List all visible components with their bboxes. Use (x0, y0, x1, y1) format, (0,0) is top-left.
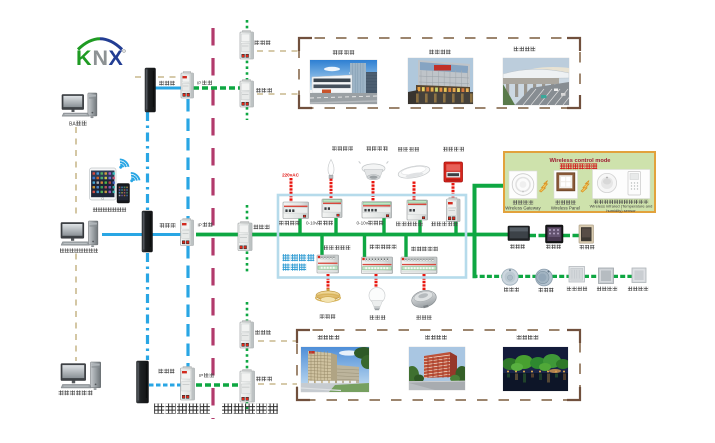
svg-text:Wireless control mode: Wireless control mode (550, 158, 611, 164)
svg-text:humidity) sensor: humidity) sensor (606, 208, 636, 213)
svg-text:Wireless Panel: Wireless Panel (551, 206, 580, 211)
svg-text:BA: BA (69, 121, 76, 127)
svg-text:IP: IP (198, 222, 202, 227)
svg-text:0-10v: 0-10v (357, 221, 369, 226)
svg-text:0-10v: 0-10v (306, 221, 318, 226)
svg-text:Wireless Gateway: Wireless Gateway (505, 206, 541, 211)
svg-text:IP: IP (197, 80, 201, 85)
svg-text:220vAC: 220vAC (282, 173, 300, 178)
svg-text:IP: IP (199, 373, 203, 378)
svg-text:K: K (76, 46, 92, 70)
svg-text:N: N (93, 46, 109, 70)
svg-text:X: X (109, 46, 124, 70)
